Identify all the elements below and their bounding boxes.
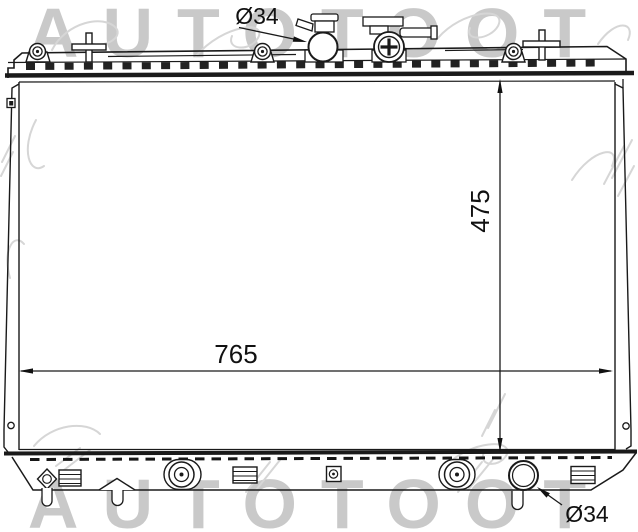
mount-leg	[42, 488, 52, 506]
core-height-label: 475	[465, 189, 495, 232]
drawing-canvas: AUTOTOOT AUTOTOOT	[0, 0, 638, 532]
left-side-channel	[4, 84, 19, 452]
watermark-scribbles	[1, 14, 634, 493]
core	[4, 79, 631, 452]
ribbed-bracket-icon	[59, 470, 81, 486]
outlet-diameter-label: Ø34	[565, 501, 609, 527]
arrowhead-left	[19, 368, 33, 373]
bottom-tank-top-band	[4, 452, 637, 454]
square-fitting-icon	[327, 467, 342, 482]
bracket-hole-round	[8, 422, 14, 428]
dimension-core-width: 765	[19, 339, 613, 374]
bracket-hole-round	[623, 423, 629, 429]
radiator-technical-drawing: AUTOTOOT AUTOTOOT	[0, 0, 638, 532]
arrowhead-right	[599, 368, 613, 373]
bottom-tank-dashed-seam	[30, 458, 612, 460]
mount-leg	[512, 491, 523, 510]
drain-plug-icon	[164, 460, 201, 490]
hex-plug-icon	[439, 460, 475, 490]
ribbed-bracket-icon	[571, 467, 595, 484]
core-width-label: 765	[214, 339, 257, 369]
inlet-diameter-label: Ø34	[235, 3, 279, 29]
top-tank-bottom-band	[5, 73, 634, 76]
dimension-core-height: 475	[465, 79, 503, 452]
ribbed-bracket-icon	[233, 467, 257, 483]
cap-lever-icon	[400, 28, 433, 37]
mount-leg	[112, 490, 123, 506]
core-top-edge	[19, 81, 615, 82]
right-side-channel	[615, 79, 631, 449]
